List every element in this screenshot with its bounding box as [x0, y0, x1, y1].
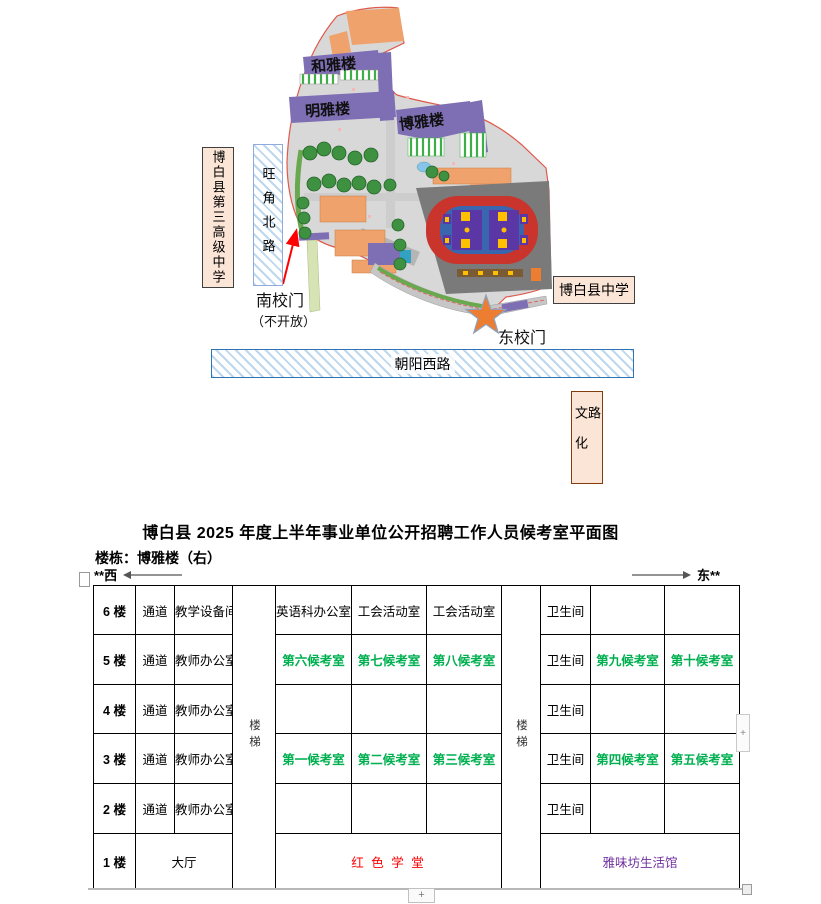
cell-office[interactable]: 教师办公室 [175, 635, 233, 685]
cell-floor[interactable]: 3 楼 [94, 734, 136, 784]
campus-map-graphic [0, 0, 821, 510]
cell-room[interactable]: 英语科办公室 [276, 586, 352, 635]
cell-room[interactable] [665, 784, 740, 834]
cell-room[interactable] [352, 685, 427, 734]
east-label: 东** [697, 565, 720, 584]
table-row-floor5: 5 楼 通道 教师办公室 第六候考室 第七候考室 第八候考室 卫生间 第九候考室… [94, 635, 740, 685]
wangjiao-north-road-band: 旺角北路 [253, 144, 283, 286]
cell-floor[interactable]: 2 楼 [94, 784, 136, 834]
insert-column-button[interactable]: + [736, 714, 750, 752]
cell-room[interactable] [591, 586, 665, 635]
cell-wc[interactable]: 卫生间 [541, 734, 591, 784]
left-school-box: 博白县第三高级中学 [202, 147, 234, 288]
table-row-floor2: 2 楼 通道 教师办公室 卫生间 [94, 784, 740, 834]
west-arrow-icon [122, 569, 184, 581]
cell-corridor[interactable]: 通道 [136, 586, 175, 635]
cell-waiting-room[interactable]: 第八候考室 [427, 635, 502, 685]
cell-red-hall[interactable]: 红 色 学 堂 [276, 834, 502, 889]
cell-stairs-west[interactable]: 楼梯 [233, 586, 276, 889]
floor-plan-table: 6 楼 通道 教学设备间 楼梯 英语科办公室 工会活动室 工会活动室 楼梯 卫生… [93, 585, 740, 889]
cell-stairs-east[interactable]: 楼梯 [502, 586, 541, 889]
document-page: 和雅楼 明雅楼 博雅楼 博白县第三高级中学 旺角北路 南校门 （不开放） 博白县… [0, 0, 821, 904]
cell-corridor[interactable]: 通道 [136, 685, 175, 734]
cell-wc[interactable]: 卫生间 [541, 586, 591, 635]
cell-hall[interactable]: 大厅 [136, 834, 233, 889]
cell-room[interactable] [352, 784, 427, 834]
cell-office[interactable]: 教师办公室 [175, 784, 233, 834]
cell-room[interactable] [665, 586, 740, 635]
cell-waiting-room[interactable]: 第六候考室 [276, 635, 352, 685]
cell-waiting-room[interactable]: 第五候考室 [665, 734, 740, 784]
cell-office[interactable]: 教师办公室 [175, 685, 233, 734]
label-heyalou: 和雅楼 [310, 52, 357, 77]
cell-wc[interactable]: 卫生间 [541, 685, 591, 734]
cell-room[interactable] [276, 784, 352, 834]
cell-room[interactable]: 工会活动室 [352, 586, 427, 635]
east-direction: 东** [630, 565, 720, 584]
cell-waiting-room[interactable]: 第二候考室 [352, 734, 427, 784]
east-arrow-icon [630, 569, 692, 581]
insert-row-button[interactable]: + [408, 888, 435, 903]
cell-wc[interactable]: 卫生间 [541, 784, 591, 834]
cell-room[interactable] [276, 685, 352, 734]
cell-room[interactable]: 工会活动室 [427, 586, 502, 635]
cell-office[interactable]: 教师办公室 [175, 734, 233, 784]
cell-room[interactable] [591, 685, 665, 734]
cell-waiting-room[interactable]: 第十候考室 [665, 635, 740, 685]
cell-corridor[interactable]: 通道 [136, 635, 175, 685]
cell-waiting-room[interactable]: 第四候考室 [591, 734, 665, 784]
cell-floor[interactable]: 1 楼 [94, 834, 136, 889]
cell-floor[interactable]: 5 楼 [94, 635, 136, 685]
page-title: 博白县 2025 年度上半年事业单位公开招聘工作人员候考室平面图 [0, 519, 761, 543]
cell-life-hall[interactable]: 雅味坊生活馆 [541, 834, 740, 889]
south-gate-label: 南校门 [256, 287, 304, 311]
label-mingyalou: 明雅楼 [304, 97, 350, 121]
cell-floor[interactable]: 4 楼 [94, 685, 136, 734]
cell-waiting-room[interactable]: 第三候考室 [427, 734, 502, 784]
west-label: **西 [94, 565, 117, 584]
table-row-floor6: 6 楼 通道 教学设备间 楼梯 英语科办公室 工会活动室 工会活动室 楼梯 卫生… [94, 586, 740, 635]
table-row-floor1: 1 楼 大厅 红 色 学 堂 雅味坊生活馆 [94, 834, 740, 889]
west-direction: **西 [94, 565, 184, 584]
stairs-label: 楼梯 [513, 719, 529, 752]
cell-wc[interactable]: 卫生间 [541, 635, 591, 685]
south-gate-arrow-icon [283, 232, 296, 284]
south-gate-note: （不开放） [251, 311, 316, 330]
right-school-label: 博白县中学 [559, 280, 629, 300]
left-school-label: 博白县第三高级中学 [212, 150, 225, 285]
table-row-floor4: 4 楼 通道 教师办公室 卫生间 [94, 685, 740, 734]
table-row-floor3: 3 楼 通道 教师办公室 第一候考室 第二候考室 第三候考室 卫生间 第四候考室… [94, 734, 740, 784]
wenhua-road-box: 文化路 [571, 391, 603, 484]
wenhua-road-label: 文化路 [574, 392, 600, 483]
stairs-label: 楼梯 [246, 719, 262, 752]
cell-waiting-room[interactable]: 第九候考室 [591, 635, 665, 685]
chaoyang-west-road-band: 朝阳西路 [211, 349, 634, 378]
cell-corridor[interactable]: 通道 [136, 734, 175, 784]
cell-room[interactable] [427, 784, 502, 834]
cell-corridor[interactable]: 通道 [136, 784, 175, 834]
cell-office[interactable]: 教学设备间 [175, 586, 233, 635]
cell-waiting-room[interactable]: 第七候考室 [352, 635, 427, 685]
wangjiao-north-road-label: 旺角北路 [262, 167, 275, 263]
cell-room[interactable] [665, 685, 740, 734]
ruler-fragment [79, 572, 90, 587]
cell-floor[interactable]: 6 楼 [94, 586, 136, 635]
east-gate-label: 东校门 [498, 324, 546, 348]
cell-waiting-room[interactable]: 第一候考室 [276, 734, 352, 784]
cell-room[interactable] [427, 685, 502, 734]
chaoyang-west-road-label: 朝阳西路 [391, 354, 455, 374]
table-resize-handle[interactable] [742, 884, 752, 895]
right-school-box: 博白县中学 [553, 276, 635, 304]
cell-room[interactable] [591, 784, 665, 834]
